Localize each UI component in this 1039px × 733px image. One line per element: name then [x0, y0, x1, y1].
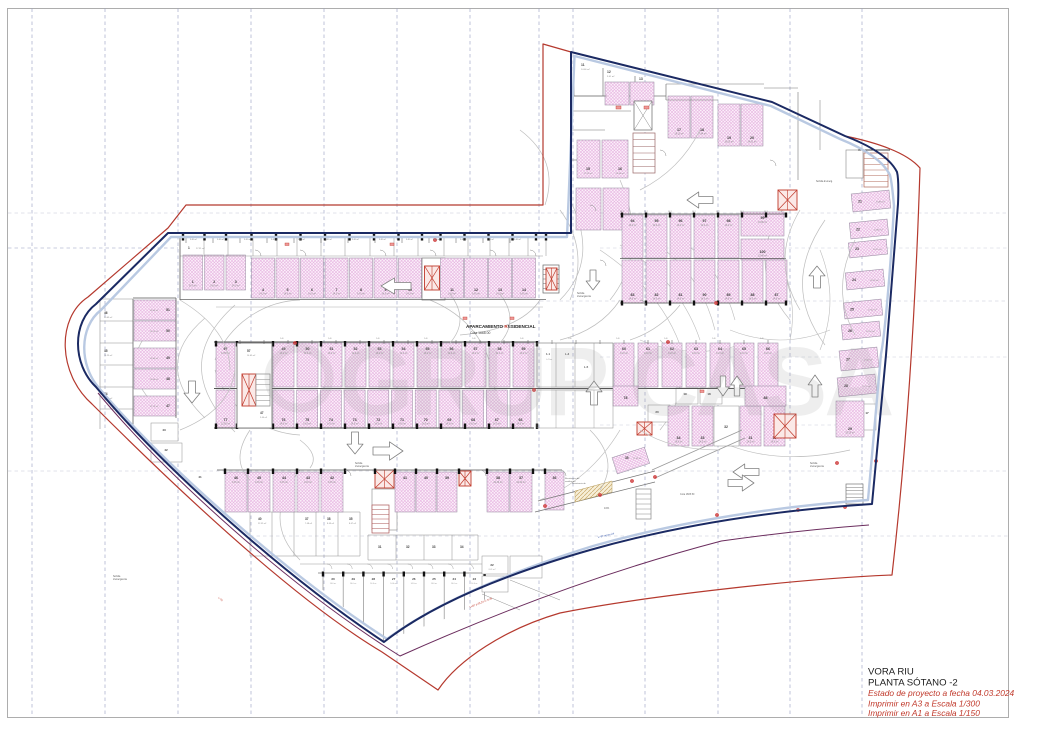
svg-text:34: 34 — [460, 545, 464, 549]
svg-text:27: 27 — [392, 577, 396, 581]
svg-text:14.0 m²: 14.0 m² — [448, 293, 456, 296]
svg-text:89: 89 — [727, 293, 731, 297]
svg-text:14.2 m²: 14.2 m² — [677, 224, 685, 227]
svg-text:VORA RIU: VORA RIU — [868, 667, 914, 678]
svg-text:14.06 m²: 14.06 m² — [581, 68, 590, 71]
svg-text:Sortida d'emerg.: Sortida d'emerg. — [816, 180, 833, 183]
svg-text:14.3 m²: 14.3 m² — [259, 293, 267, 296]
svg-text:22.52 m²: 22.52 m² — [258, 522, 267, 525]
svg-text:14.5 m²: 14.5 m² — [771, 441, 779, 444]
svg-text:14.5 m²: 14.5 m² — [280, 423, 288, 426]
svg-text:24: 24 — [852, 278, 856, 282]
svg-text:81: 81 — [679, 293, 683, 297]
svg-text:14.15 m²: 14.15 m² — [873, 248, 882, 251]
svg-text:14.0 m²: 14.0 m² — [451, 582, 458, 585]
svg-text:14.2 m²: 14.2 m² — [328, 352, 336, 355]
svg-text:14.0 m²: 14.0 m² — [411, 582, 418, 585]
svg-text:14.5 m²: 14.5 m² — [675, 441, 683, 444]
svg-text:14.5 m²: 14.5 m² — [725, 298, 733, 301]
svg-text:14.5 m²: 14.5 m² — [303, 423, 311, 426]
svg-text:14.65 m²: 14.65 m² — [247, 354, 256, 357]
svg-text:PLANTA SÓTANO -2: PLANTA SÓTANO -2 — [868, 678, 958, 689]
svg-text:82: 82 — [655, 293, 659, 297]
svg-text:13.6 m²: 13.6 m² — [232, 481, 240, 484]
svg-text:14.0 m²: 14.0 m² — [370, 582, 377, 585]
svg-text:13.96 m²: 13.96 m² — [758, 221, 767, 224]
svg-text:28: 28 — [372, 577, 376, 581]
svg-text:40: 40 — [424, 476, 428, 480]
svg-text:14.86 m²: 14.86 m² — [874, 229, 883, 232]
svg-text:14: 14 — [522, 288, 526, 292]
svg-text:14.2: 14.2 — [668, 211, 672, 213]
svg-text:14.2: 14.2 — [716, 211, 720, 213]
svg-text:17.32 m²: 17.32 m² — [868, 309, 877, 312]
svg-text:12: 12 — [607, 70, 611, 74]
svg-text:9.40 m²: 9.40 m² — [217, 238, 224, 241]
svg-text:13.6 m²: 13.6 m² — [280, 481, 288, 484]
svg-text:30: 30 — [331, 577, 335, 581]
svg-text:9.40 m²: 9.40 m² — [433, 238, 440, 241]
svg-text:Resistencia de: Resistencia de — [565, 477, 580, 480]
svg-text:31: 31 — [749, 436, 753, 440]
svg-text:14.2: 14.2 — [620, 211, 624, 213]
svg-text:25: 25 — [850, 308, 854, 312]
svg-text:45: 45 — [104, 349, 108, 353]
svg-text:Sortida: Sortida — [113, 575, 121, 578]
svg-text:13.6 m²: 13.6 m² — [328, 481, 336, 484]
svg-text:18: 18 — [700, 128, 704, 132]
svg-text:20.34 m²: 20.34 m² — [616, 172, 625, 175]
svg-text:14.3 m²: 14.3 m² — [382, 293, 390, 296]
svg-text:9.40 m²: 9.40 m² — [298, 238, 305, 241]
svg-text:14.0 m²: 14.0 m² — [472, 293, 480, 296]
svg-text:20: 20 — [750, 136, 754, 140]
svg-text:Sortida: Sortida — [577, 292, 585, 295]
svg-text:88: 88 — [751, 293, 755, 297]
svg-text:7: 7 — [336, 288, 338, 292]
svg-text:8.41 m²: 8.41 m² — [489, 568, 496, 571]
svg-text:14.88 m²: 14.88 m² — [876, 201, 885, 204]
svg-text:19: 19 — [727, 136, 731, 140]
svg-text:14.2: 14.2 — [764, 211, 768, 213]
svg-text:16.06 m²: 16.06 m² — [150, 309, 159, 312]
svg-text:8.47 m²: 8.47 m² — [349, 522, 356, 525]
svg-text:9.40 m²: 9.40 m² — [244, 238, 251, 241]
svg-text:11: 11 — [581, 63, 585, 67]
svg-text:Sortida: Sortida — [355, 462, 363, 465]
svg-text:75: 75 — [305, 418, 309, 422]
svg-text:9.41 m²: 9.41 m² — [607, 75, 615, 78]
svg-text:9.40 m²: 9.40 m² — [352, 238, 359, 241]
svg-text:98: 98 — [727, 219, 731, 223]
svg-text:16.26 m²: 16.26 m² — [870, 279, 879, 282]
svg-text:99: 99 — [761, 216, 765, 220]
svg-text:7.48 m²: 7.48 m² — [305, 522, 312, 525]
svg-text:12.65 m²: 12.65 m² — [221, 423, 230, 426]
svg-text:27.31 m²: 27.31 m² — [196, 247, 205, 250]
svg-text:14.61 m²: 14.61 m² — [747, 141, 756, 144]
svg-text:Imprimir en A1 a Escala 1/150: Imprimir en A1 a Escala 1/150 — [868, 708, 980, 718]
svg-text:48: 48 — [166, 377, 170, 381]
svg-text:13: 13 — [639, 77, 643, 81]
svg-text:36: 36 — [553, 476, 557, 480]
svg-text:Resistencia de: Resistencia de — [572, 482, 586, 485]
svg-text:4: 4 — [262, 288, 264, 292]
svg-text:95: 95 — [655, 219, 659, 223]
svg-text:15: 15 — [586, 167, 590, 171]
svg-text:77: 77 — [224, 418, 228, 422]
svg-text:100: 100 — [760, 250, 766, 254]
svg-text:5.44 m²: 5.44 m² — [260, 416, 267, 419]
svg-text:14.2: 14.2 — [740, 211, 744, 213]
svg-text:41: 41 — [198, 475, 202, 479]
svg-text:14.0 m²: 14.0 m² — [431, 582, 438, 585]
svg-text:35: 35 — [625, 456, 629, 460]
svg-text:14.5 m²: 14.5 m² — [327, 423, 335, 426]
svg-text:11: 11 — [450, 288, 454, 292]
svg-text:8.43 m²: 8.43 m² — [327, 522, 334, 525]
svg-text:12: 12 — [474, 288, 478, 292]
svg-text:14.0 m²: 14.0 m² — [520, 293, 528, 296]
svg-text:14.0 m²: 14.0 m² — [471, 582, 478, 585]
svg-text:47: 47 — [260, 411, 264, 415]
svg-text:16.06 m²: 16.06 m² — [150, 378, 159, 381]
svg-text:9.40 m²: 9.40 m² — [379, 238, 386, 241]
svg-text:35: 35 — [349, 517, 353, 521]
svg-text:45: 45 — [257, 476, 261, 480]
svg-text:9.40 m²: 9.40 m² — [460, 238, 467, 241]
svg-text:37: 37 — [519, 476, 523, 480]
svg-text:d'emergència: d'emergència — [810, 465, 824, 468]
svg-text:14.3 m²: 14.3 m² — [406, 293, 414, 296]
svg-text:14.2 m²: 14.2 m² — [725, 224, 733, 227]
svg-text:13.6 m²: 13.6 m² — [255, 481, 263, 484]
svg-text:87: 87 — [775, 293, 779, 297]
svg-text:14.65 m²: 14.65 m² — [221, 352, 230, 355]
svg-text:47: 47 — [166, 404, 170, 408]
svg-text:14.5 m²: 14.5 m² — [747, 441, 755, 444]
svg-text:14.2 m²: 14.2 m² — [629, 224, 637, 227]
svg-text:50: 50 — [166, 329, 170, 333]
svg-text:43: 43 — [306, 476, 310, 480]
svg-text:16.05 m²: 16.05 m² — [724, 141, 733, 144]
svg-text:83: 83 — [631, 293, 635, 297]
svg-text:8: 8 — [360, 288, 362, 292]
svg-text:14.5 m²: 14.5 m² — [653, 298, 661, 301]
svg-text:26: 26 — [412, 577, 416, 581]
svg-text:24.49 m²: 24.49 m² — [493, 481, 502, 484]
svg-text:9.40 m²: 9.40 m² — [271, 238, 278, 241]
svg-text:14.0 m²: 14.0 m² — [350, 582, 357, 585]
svg-text:9.40 m²: 9.40 m² — [406, 238, 413, 241]
svg-text:Sortida: Sortida — [810, 462, 818, 465]
svg-text:14.2: 14.2 — [692, 211, 696, 213]
svg-text:14.5 m²: 14.5 m² — [749, 298, 757, 301]
svg-text:29: 29 — [351, 577, 355, 581]
svg-text:20.63 m²: 20.63 m² — [104, 316, 113, 319]
svg-text:24.42 m²: 24.42 m² — [516, 481, 525, 484]
svg-text:17.22 m²: 17.22 m² — [584, 172, 593, 175]
svg-text:46: 46 — [234, 476, 238, 480]
svg-text:94: 94 — [631, 219, 635, 223]
svg-text:13.6 m²: 13.6 m² — [304, 481, 312, 484]
svg-text:14.0 m²: 14.0 m² — [390, 582, 397, 585]
svg-text:9.40 m²: 9.40 m² — [514, 238, 521, 241]
svg-text:d'emergència: d'emergència — [355, 465, 369, 468]
svg-text:14.3 m²: 14.3 m² — [308, 293, 316, 296]
svg-text:21.73 m²: 21.73 m² — [150, 405, 159, 408]
svg-text:90: 90 — [703, 293, 707, 297]
svg-text:96: 96 — [679, 219, 683, 223]
svg-text:22: 22 — [490, 563, 494, 567]
svg-text:22: 22 — [856, 228, 860, 232]
svg-text:23: 23 — [855, 247, 859, 251]
svg-text:9.40 m²: 9.40 m² — [487, 238, 494, 241]
svg-text:51: 51 — [330, 347, 334, 351]
svg-text:9.40 m²: 9.40 m² — [325, 238, 332, 241]
svg-text:21: 21 — [858, 200, 862, 204]
svg-text:38: 38 — [496, 476, 500, 480]
svg-text:40: 40 — [258, 517, 262, 521]
svg-text:14.2 m²: 14.2 m² — [701, 224, 709, 227]
svg-text:14.3 m²: 14.3 m² — [333, 293, 341, 296]
svg-text:14.29 m²: 14.29 m² — [104, 354, 113, 357]
svg-text:d'emergència: d'emergència — [113, 578, 127, 581]
svg-text:14.5 m²: 14.5 m² — [773, 298, 781, 301]
svg-text:14.3 m²: 14.3 m² — [284, 293, 292, 296]
svg-text:17.32 m²: 17.32 m² — [633, 457, 642, 460]
svg-text:1: 1 — [192, 280, 194, 284]
svg-text:23: 23 — [473, 577, 477, 581]
svg-text:32: 32 — [406, 545, 410, 549]
svg-text:24: 24 — [452, 577, 456, 581]
svg-text:49: 49 — [166, 356, 170, 360]
svg-text:2: 2 — [213, 280, 215, 284]
svg-text:14.0 m²: 14.0 m² — [330, 582, 337, 585]
svg-text:6: 6 — [311, 288, 313, 292]
svg-text:33: 33 — [701, 436, 705, 440]
svg-text:57: 57 — [247, 349, 251, 353]
svg-text:42: 42 — [164, 448, 168, 452]
svg-text:76: 76 — [282, 418, 286, 422]
svg-text:31: 31 — [378, 545, 382, 549]
svg-text:16.60 m²: 16.60 m² — [150, 357, 159, 360]
svg-text:14.2 m²: 14.2 m² — [653, 224, 661, 227]
svg-text:14.5 m²: 14.5 m² — [629, 298, 637, 301]
svg-text:46: 46 — [104, 311, 108, 315]
svg-text:Estado de proyecto a fecha 04.: Estado de proyecto a fecha 04.03.2024 — [868, 688, 1015, 698]
svg-text:9.40 m²: 9.40 m² — [190, 238, 197, 241]
svg-text:41: 41 — [403, 476, 407, 480]
svg-text:14.5 m²: 14.5 m² — [699, 441, 707, 444]
svg-text:2.40: 2.40 — [280, 338, 284, 340]
svg-text:24.0 m²: 24.0 m² — [189, 285, 197, 288]
svg-text:16: 16 — [618, 167, 622, 171]
svg-text:16.13 m²: 16.13 m² — [150, 330, 159, 333]
svg-text:97: 97 — [703, 219, 707, 223]
svg-text:17.84 m²: 17.84 m² — [697, 133, 706, 136]
svg-text:37: 37 — [305, 517, 309, 521]
svg-text:14.5 m²: 14.5 m² — [701, 298, 709, 301]
svg-text:14.5 m²: 14.5 m² — [677, 298, 685, 301]
svg-text:34: 34 — [677, 436, 681, 440]
svg-text:1: 1 — [188, 246, 190, 250]
svg-text:43: 43 — [162, 428, 166, 432]
svg-text:38: 38 — [327, 517, 331, 521]
svg-text:14.2: 14.2 — [644, 211, 648, 213]
svg-text:13: 13 — [498, 288, 502, 292]
svg-text:25: 25 — [432, 577, 436, 581]
svg-text:24.0 m²: 24.0 m² — [232, 285, 240, 288]
svg-text:19.11 m²: 19.11 m² — [675, 133, 684, 136]
svg-text:39: 39 — [445, 476, 449, 480]
svg-text:24.0 m²: 24.0 m² — [210, 285, 218, 288]
svg-text:13.46 m²: 13.46 m² — [758, 255, 767, 258]
svg-text:5: 5 — [287, 288, 289, 292]
svg-text:GRUP CASA: GRUP CASA — [338, 327, 892, 436]
svg-text:2.40: 2.40 — [328, 338, 332, 340]
svg-text:d'emergència: d'emergència — [577, 295, 591, 298]
svg-text:44: 44 — [282, 476, 286, 480]
svg-text:17: 17 — [677, 128, 681, 132]
svg-text:33: 33 — [432, 545, 436, 549]
svg-text:3: 3 — [235, 280, 237, 284]
svg-text:51: 51 — [166, 308, 170, 312]
svg-text:42: 42 — [330, 476, 334, 480]
svg-text:Imprimir en A3 a Escala 1/300: Imprimir en A3 a Escala 1/300 — [868, 699, 980, 709]
svg-text:16%: 16% — [604, 506, 610, 510]
svg-text:Cota 1805.50: Cota 1805.50 — [680, 493, 695, 496]
svg-text:14.3 m²: 14.3 m² — [357, 293, 365, 296]
svg-text:74: 74 — [329, 418, 333, 422]
